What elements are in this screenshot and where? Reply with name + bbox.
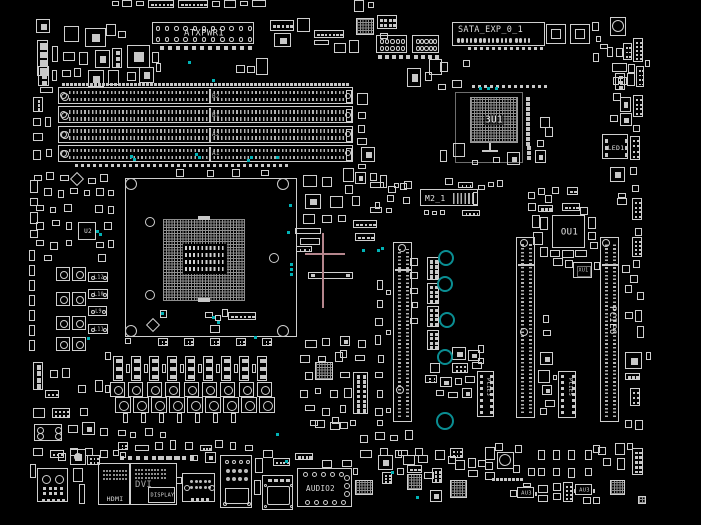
component[interactable] [330,196,343,208]
component[interactable] [215,440,223,448]
pin-header[interactable] [425,375,437,383]
component[interactable] [645,60,650,67]
component[interactable] [528,468,535,476]
component[interactable] [88,178,96,184]
component[interactable] [60,175,69,181]
component[interactable] [349,40,359,53]
ic-lattice[interactable] [407,474,422,490]
pin-header[interactable] [270,20,294,31]
component[interactable] [322,338,330,346]
component[interactable] [52,220,60,226]
component[interactable] [478,185,485,190]
component[interactable] [44,255,52,261]
component[interactable] [616,48,623,57]
component[interactable] [162,364,166,373]
pin-header[interactable] [112,48,122,68]
component[interactable] [46,172,54,180]
component[interactable] [255,458,263,473]
pin-header[interactable] [567,187,578,195]
component[interactable] [565,260,573,268]
component[interactable] [375,408,383,416]
pin-header[interactable] [296,246,312,252]
power-choke[interactable] [241,397,257,413]
sata-express-connector[interactable]: SATA_EXP_0_1 [452,22,545,46]
ic-component[interactable] [440,377,452,387]
io-audio-connector[interactable]: AUDIO2 [297,468,352,507]
component[interactable] [497,180,503,187]
component[interactable] [141,413,146,423]
component[interactable] [388,186,396,193]
component[interactable] [545,195,552,203]
component[interactable] [635,228,642,236]
pin-header[interactable] [377,15,397,29]
component[interactable] [528,192,535,199]
component[interactable] [540,408,547,415]
component[interactable] [568,468,575,478]
component[interactable] [553,468,560,476]
pin-header[interactable] [458,182,473,188]
component[interactable] [596,36,601,42]
component[interactable] [538,495,548,502]
component[interactable] [29,310,35,321]
component[interactable] [30,464,36,478]
ic-component[interactable] [36,19,50,33]
component[interactable] [33,133,43,141]
ic-component[interactable] [355,172,366,184]
component[interactable] [177,413,182,423]
component[interactable] [36,205,44,211]
pin-header[interactable] [633,38,643,62]
pin-header[interactable] [262,338,272,346]
ic-component[interactable] [274,33,291,47]
component[interactable] [445,178,453,185]
ic-component[interactable] [205,452,216,463]
component[interactable] [523,483,531,487]
component[interactable] [234,364,238,373]
component[interactable] [537,140,544,147]
component[interactable] [29,340,35,351]
component[interactable] [387,195,394,202]
led-indicator-led1[interactable]: LED1 [602,134,628,159]
component[interactable] [488,182,494,187]
component[interactable] [334,43,346,53]
pin-header[interactable] [427,330,439,350]
component[interactable] [533,232,543,245]
pin-header[interactable] [210,338,220,346]
component[interactable] [440,210,445,215]
component[interactable] [29,325,35,336]
pin-header[interactable] [353,372,368,414]
component[interactable] [33,150,41,160]
component[interactable] [545,127,553,137]
component[interactable] [377,420,383,426]
ic-component[interactable] [540,352,553,365]
component[interactable] [155,442,163,450]
pin-header[interactable] [236,338,246,346]
pin-header[interactable] [158,338,168,346]
component[interactable] [575,29,585,39]
component[interactable] [50,370,58,378]
component[interactable] [370,173,377,181]
pin-header[interactable] [462,210,480,216]
power-choke[interactable] [187,397,203,413]
power-choke[interactable] [257,382,272,397]
component[interactable] [236,65,245,73]
ic-chip-xu1[interactable]: XU1 [573,262,592,278]
component[interactable] [628,64,635,73]
ic-lattice[interactable] [450,480,467,498]
component[interactable] [403,455,415,465]
component[interactable] [315,388,321,394]
component[interactable] [261,170,269,176]
pin-header[interactable] [563,482,573,502]
io-vga-connector[interactable] [182,473,215,502]
power-choke[interactable] [151,397,167,413]
component[interactable] [30,180,38,193]
component[interactable] [263,450,273,458]
component[interactable] [440,150,447,162]
component[interactable] [96,188,104,196]
io-hdmi-connector[interactable]: HDMI [98,463,130,505]
component[interactable] [580,207,588,215]
ic-component[interactable] [610,167,625,182]
component[interactable] [424,210,429,215]
ic-chip-ou1[interactable]: OU1 [552,215,585,248]
component[interactable] [64,204,72,212]
ic-component[interactable] [340,336,350,346]
component[interactable] [583,497,591,504]
ic-component[interactable] [542,385,552,395]
component[interactable] [185,442,193,450]
component[interactable] [455,378,462,385]
pin-header[interactable] [625,373,640,380]
inductor[interactable]: L11 [88,324,108,334]
power-choke[interactable] [56,292,70,306]
ic-component[interactable] [430,490,442,502]
component[interactable] [612,63,627,72]
component[interactable] [545,400,555,407]
component[interactable] [176,169,184,177]
pin-header[interactable] [538,205,553,212]
inductor[interactable]: L9 [88,306,107,316]
component[interactable] [105,385,110,393]
ic-component[interactable] [620,97,631,112]
component[interactable] [216,364,220,373]
power-connector[interactable] [376,35,407,53]
component[interactable] [305,372,313,380]
component[interactable] [468,470,478,477]
component[interactable] [630,275,638,283]
component[interactable] [377,300,383,308]
component[interactable] [615,443,625,455]
dimm-slot[interactable]: A1 [58,145,353,162]
component[interactable] [380,175,387,188]
component[interactable] [123,413,128,423]
io-ps2-connector[interactable] [37,468,68,502]
power-choke[interactable] [184,382,199,397]
component[interactable] [625,312,633,319]
component[interactable] [386,408,391,413]
ic-component[interactable] [139,67,154,83]
component[interactable] [375,318,383,326]
power-connector[interactable] [412,35,439,53]
component[interactable] [552,187,559,194]
pin-header[interactable] [353,220,377,228]
component[interactable] [100,174,108,182]
component[interactable] [630,167,637,175]
component[interactable] [515,445,522,453]
ic-component[interactable] [82,422,95,435]
component[interactable] [152,52,159,63]
pin-header[interactable] [38,66,49,86]
component[interactable] [633,260,640,268]
power-choke[interactable] [72,316,86,330]
component[interactable] [108,206,114,214]
inductor[interactable]: L12 [88,272,108,282]
audio-component[interactable]: AU3 [517,487,534,498]
component[interactable] [553,450,560,460]
component[interactable] [73,468,83,482]
component[interactable] [231,413,236,423]
component[interactable] [29,280,35,291]
component[interactable] [435,450,445,460]
ic-chip-u2[interactable]: U2 [78,222,96,240]
pin-header[interactable] [382,472,392,484]
component[interactable] [70,188,78,194]
component[interactable] [245,445,253,451]
power-choke[interactable] [147,382,162,397]
component[interactable] [340,350,347,358]
power-connector[interactable] [34,424,62,441]
component[interactable] [340,372,350,378]
component[interactable] [607,47,613,57]
component[interactable] [135,445,149,451]
pin-header[interactable] [632,198,642,220]
component[interactable] [377,280,383,290]
component[interactable] [322,408,330,416]
component[interactable] [66,240,72,246]
ic-component[interactable] [305,194,321,209]
component[interactable] [538,450,545,460]
component[interactable] [553,483,561,491]
component[interactable] [344,388,352,398]
component[interactable] [465,376,475,383]
pin-header[interactable] [178,0,208,8]
component[interactable] [332,417,339,424]
component[interactable] [375,335,381,345]
component[interactable] [303,214,315,224]
component[interactable] [34,175,42,181]
pin-header[interactable] [52,408,70,418]
component[interactable] [145,428,153,436]
component[interactable] [30,230,38,238]
component[interactable] [455,460,465,470]
component[interactable] [160,432,166,438]
component[interactable] [345,185,353,194]
component[interactable] [588,232,596,240]
component[interactable] [625,285,632,293]
pin-header[interactable] [427,306,439,327]
io-lan-usb-connector[interactable] [220,455,252,508]
inductor[interactable]: L10 [88,289,108,299]
component[interactable] [617,198,627,205]
component[interactable] [240,1,248,6]
component[interactable] [80,408,88,416]
component[interactable] [342,460,352,467]
component[interactable] [29,295,35,306]
audio-component[interactable]: AU3 [575,484,592,495]
component[interactable] [637,292,644,300]
component[interactable] [478,358,484,364]
component[interactable] [33,118,41,126]
power-choke[interactable] [223,397,239,413]
component[interactable] [118,31,126,38]
ic-component[interactable] [127,45,150,68]
component[interactable] [538,188,545,195]
component[interactable] [440,62,448,72]
pin-header[interactable] [562,203,580,211]
component[interactable] [540,247,548,257]
pin-header[interactable] [636,66,644,87]
pin-header[interactable] [432,468,442,483]
component[interactable] [355,355,365,361]
component[interactable] [125,338,131,344]
component[interactable] [378,355,384,363]
component[interactable] [495,443,503,451]
component[interactable] [532,215,540,228]
component[interactable] [224,0,236,8]
power-choke[interactable] [72,292,86,306]
component[interactable] [485,447,495,460]
ic-lattice[interactable] [638,496,646,504]
m2-connector[interactable]: M2_1 [420,189,478,206]
component[interactable] [207,170,214,177]
component[interactable] [353,468,358,475]
pin-header[interactable] [295,453,313,460]
pin-header[interactable] [314,30,344,38]
power-choke[interactable] [110,382,125,397]
component[interactable] [358,125,365,133]
dimm-slot[interactable]: B1 [58,106,353,123]
component[interactable] [598,447,606,455]
component[interactable] [418,455,428,463]
pin-header[interactable] [630,136,640,160]
component[interactable] [340,422,348,429]
component[interactable] [195,413,200,423]
pin-header[interactable] [615,73,625,90]
component[interactable] [213,413,218,423]
pin-header[interactable] [33,362,43,390]
component[interactable] [350,420,356,426]
component[interactable] [36,240,44,246]
component[interactable] [430,363,440,373]
power-choke[interactable] [72,337,86,351]
component[interactable] [386,330,391,335]
component[interactable] [127,72,136,81]
mosfet-driver[interactable] [131,356,141,381]
component[interactable] [637,326,644,338]
boardview-canvas[interactable]: ATXPWR1SATA_EXP_0_1LED1B2B1A2A13U1M2_1PC… [0,0,701,525]
component[interactable] [585,450,592,460]
power-choke[interactable] [128,382,143,397]
component[interactable] [305,405,315,411]
component[interactable] [300,355,310,363]
component[interactable] [551,29,561,39]
component[interactable] [130,432,136,438]
power-choke[interactable] [165,382,180,397]
component[interactable] [303,175,317,187]
component[interactable] [68,425,78,433]
component[interactable] [64,26,79,42]
io-dvi-display-connector[interactable]: DVIDISPLAY [130,463,177,505]
component[interactable] [322,460,332,468]
component[interactable] [100,428,108,436]
component[interactable] [338,215,346,222]
component[interactable] [592,22,599,31]
mosfet-driver[interactable] [257,356,267,381]
component[interactable] [360,435,368,443]
ic-lattice[interactable] [315,362,333,380]
component[interactable] [84,190,90,196]
component[interactable] [230,442,236,450]
component[interactable] [543,315,549,323]
component[interactable] [646,352,651,360]
component[interactable] [232,169,240,177]
pin-header[interactable] [452,363,468,373]
component[interactable] [46,149,52,157]
ic-component[interactable] [361,147,375,162]
component[interactable] [33,448,43,456]
component[interactable] [448,392,458,398]
power-choke[interactable] [56,267,70,281]
component[interactable] [390,435,398,441]
pcie-x1-connector[interactable]: PCIE3 [477,371,494,417]
component[interactable] [453,143,465,157]
component[interactable] [412,302,418,308]
component[interactable] [357,138,367,145]
component[interactable] [493,157,500,163]
component[interactable] [513,465,520,473]
component[interactable] [300,390,308,398]
pin-header[interactable] [184,338,194,346]
power-choke[interactable] [133,397,149,413]
component[interactable] [52,70,57,81]
component[interactable] [468,458,476,468]
component[interactable] [100,450,108,458]
component[interactable] [575,250,587,257]
ic-component[interactable] [407,68,421,87]
component[interactable] [95,380,103,392]
pin-header[interactable] [632,237,642,257]
component[interactable] [50,242,58,250]
component[interactable] [357,93,368,105]
pcie-x1-connector[interactable]: PCIE5 [558,371,576,418]
power-choke[interactable] [202,382,217,397]
component[interactable] [452,80,462,88]
pin-header[interactable] [355,233,375,241]
ic-component[interactable] [507,152,520,165]
component[interactable] [247,66,255,73]
component[interactable] [568,450,575,460]
pin-header[interactable] [450,448,463,458]
dimm-slot[interactable]: B2 [58,87,353,104]
component[interactable] [113,450,119,456]
component[interactable] [52,46,58,62]
pcie-slot[interactable] [393,242,412,422]
component[interactable] [33,408,45,418]
component[interactable] [368,2,374,8]
component[interactable] [553,258,563,266]
